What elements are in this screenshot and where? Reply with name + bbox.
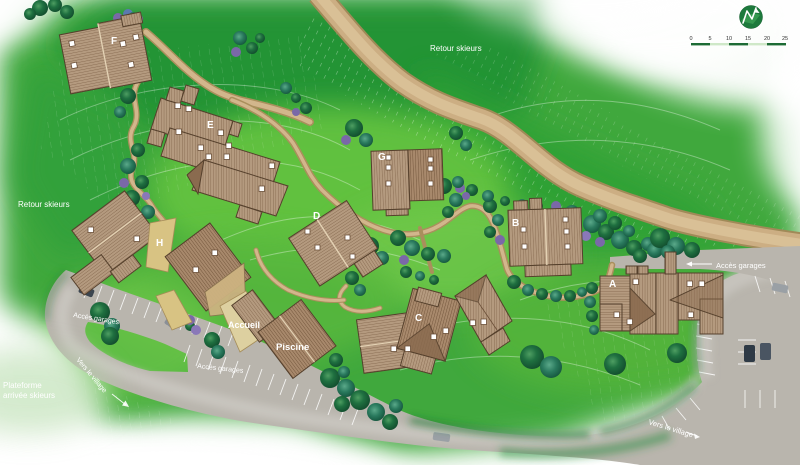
svg-text:Retour skieurs: Retour skieurs	[18, 200, 70, 209]
svg-text:H: H	[156, 238, 163, 249]
svg-text:0: 0	[689, 36, 692, 42]
svg-text:Accueil: Accueil	[228, 320, 260, 330]
svg-text:Accès garages: Accès garages	[716, 261, 766, 270]
svg-text:E: E	[207, 120, 214, 131]
svg-text:Piscine: Piscine	[276, 342, 309, 353]
svg-text:10: 10	[726, 36, 732, 42]
svg-text:C: C	[415, 313, 422, 324]
svg-text:15: 15	[745, 36, 751, 42]
svg-text:A: A	[609, 279, 616, 290]
svg-text:20: 20	[764, 36, 770, 42]
svg-text:G: G	[378, 152, 386, 163]
svg-text:F: F	[111, 36, 117, 47]
svg-text:Retour skieurs: Retour skieurs	[430, 44, 482, 53]
svg-text:5: 5	[708, 36, 711, 42]
svg-text:arrivée skieurs: arrivée skieurs	[3, 391, 55, 400]
svg-text:D: D	[313, 211, 320, 222]
svg-text:Plateforme: Plateforme	[3, 381, 42, 390]
svg-text:25: 25	[782, 36, 788, 42]
svg-text:B: B	[512, 218, 519, 229]
